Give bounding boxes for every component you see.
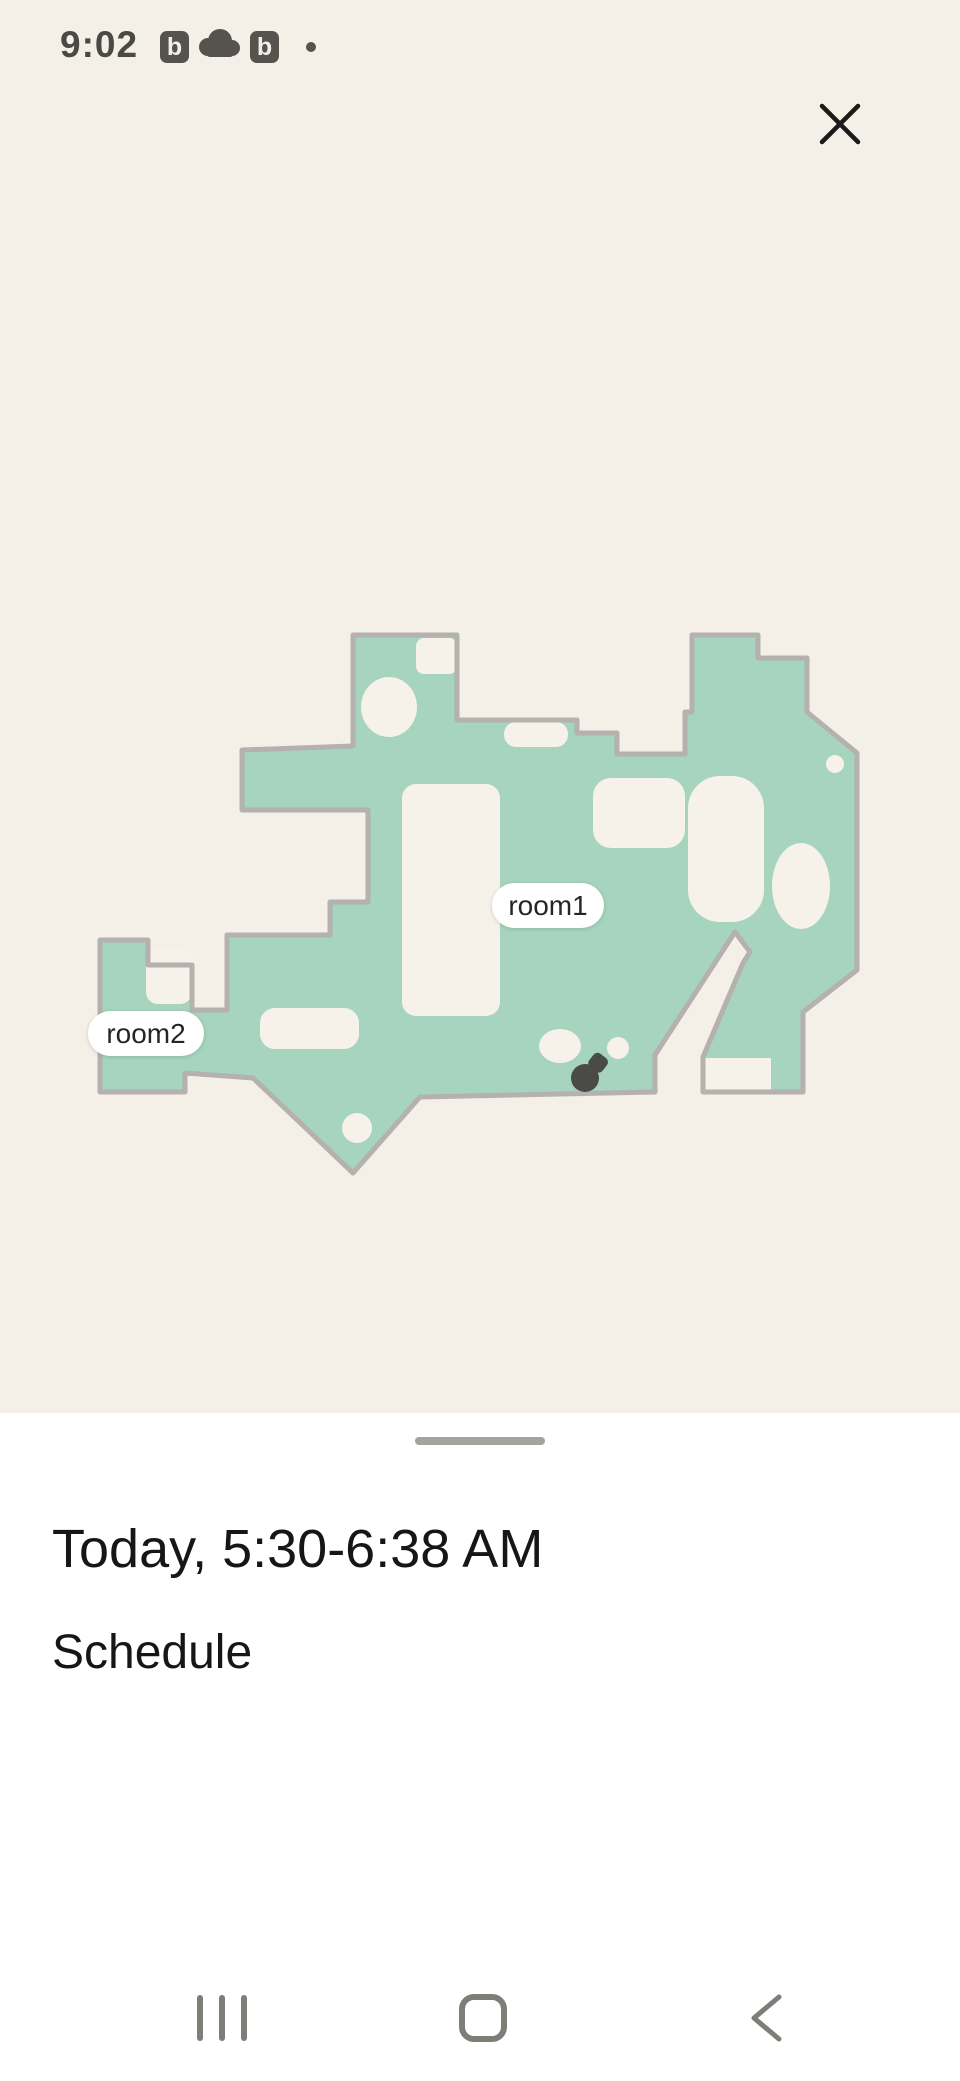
back-chevron-icon [754,1997,779,2039]
room1-label-text: room1 [508,890,587,922]
cloud-icon [196,26,244,60]
room-label-room1[interactable]: room1 [492,883,604,928]
status-bar: 9:02 b b 6 [0,0,960,72]
close-button[interactable] [810,94,870,154]
cleaning-map[interactable] [0,580,960,1200]
notification-dot-icon [306,42,316,52]
notification-b-badge-icon: b [160,31,189,63]
room2-label-text: room2 [106,1018,185,1050]
clock: 9:02 [60,24,138,66]
recents-icon [197,1995,203,2041]
map-canvas [0,580,960,1200]
cleaning-session-title: Today, 5:30-6:38 AM [52,1518,543,1580]
close-icon [818,102,862,146]
notification-b-badge-icon: b [250,31,279,63]
home-button[interactable] [459,1994,507,2042]
schedule-label[interactable]: Schedule [52,1625,252,1680]
sheet-drag-handle[interactable] [415,1437,545,1445]
back-button[interactable] [748,1994,784,2042]
recents-button[interactable] [197,1995,247,2041]
room-label-room2[interactable]: room2 [88,1011,204,1056]
android-nav-bar [0,1960,960,2081]
